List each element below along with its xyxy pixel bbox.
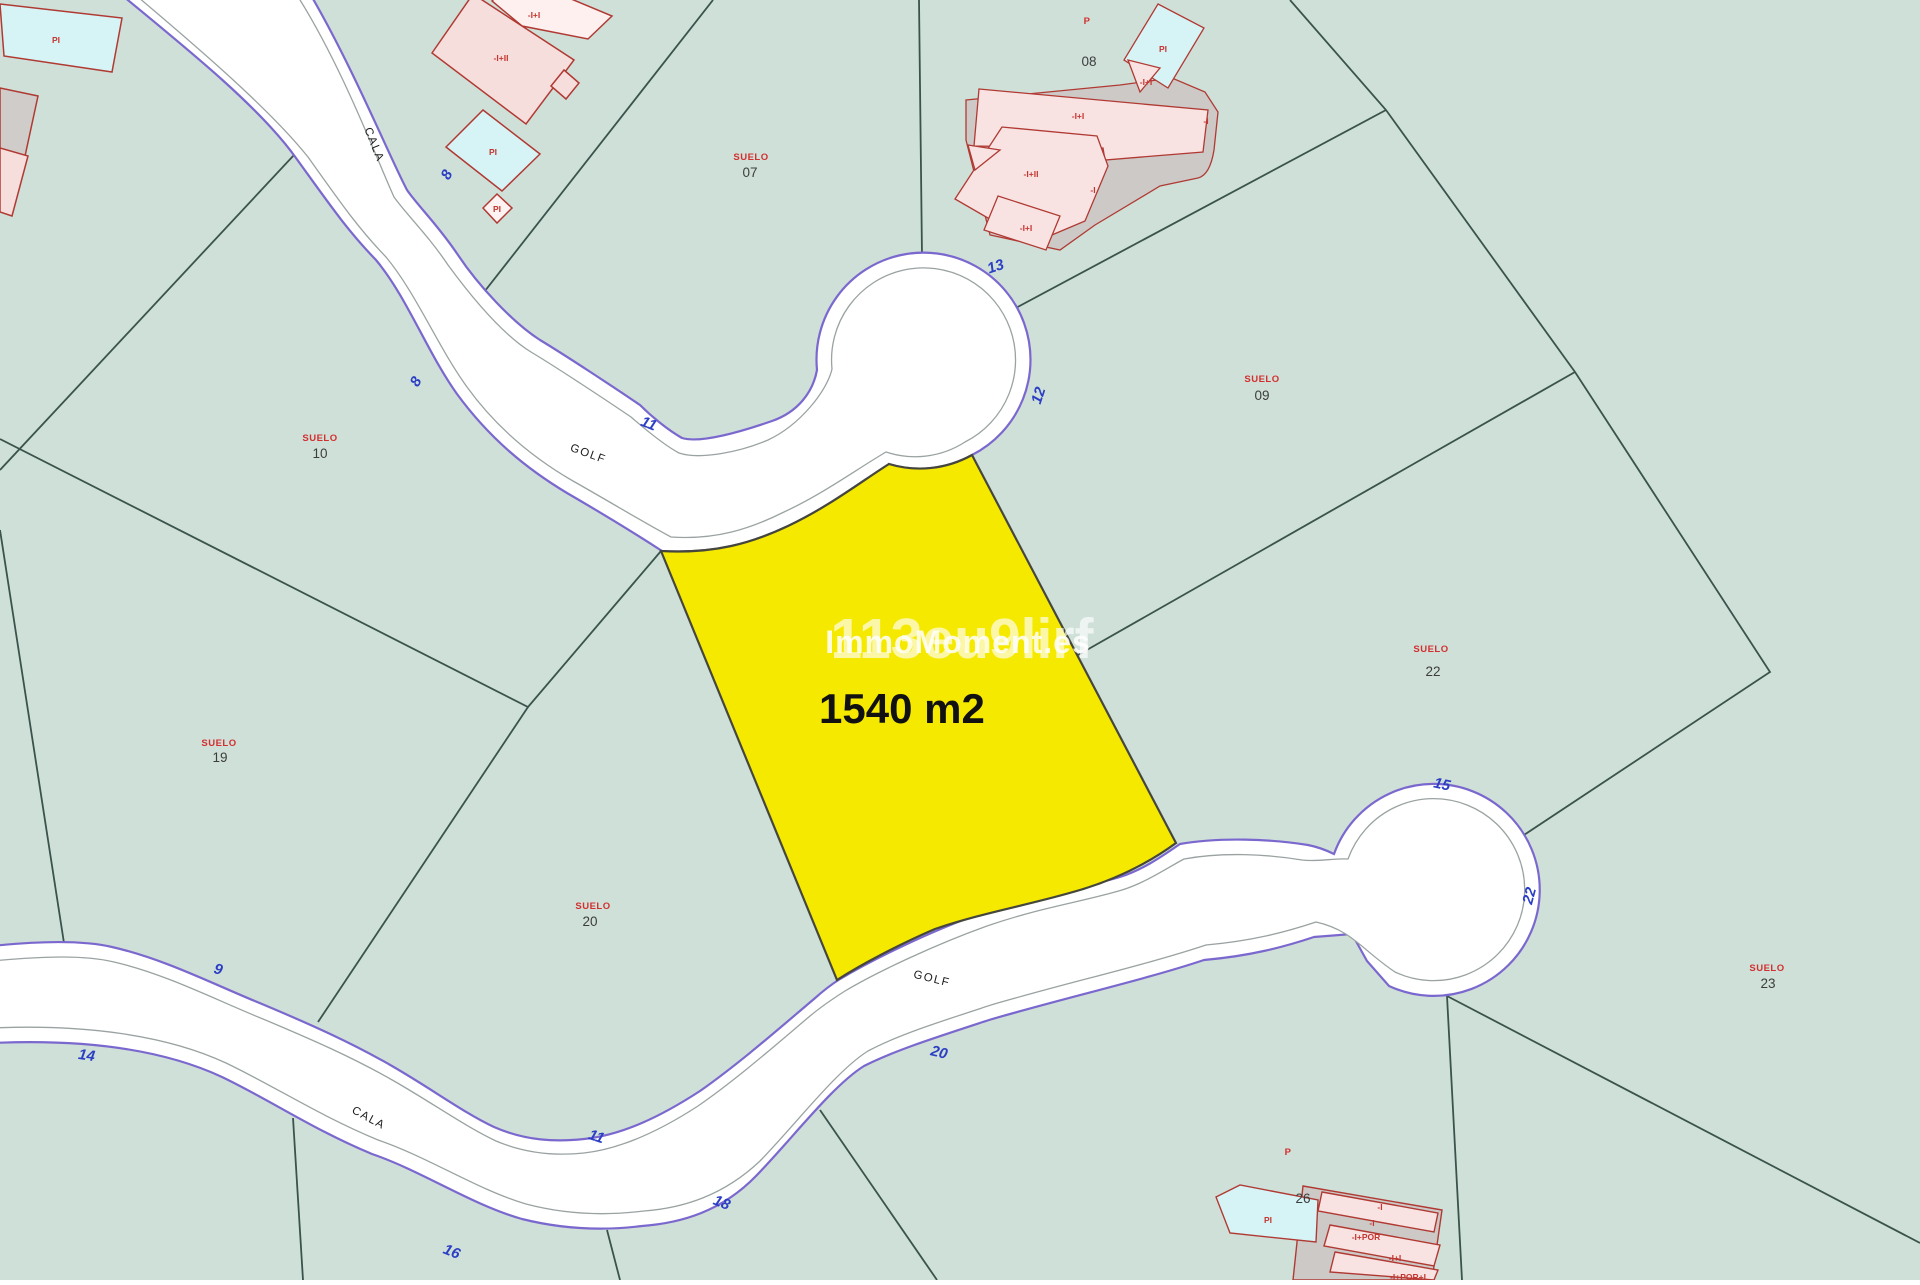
svg-text:09: 09 [1254,388,1269,403]
svg-text:SUELO: SUELO [1413,644,1448,655]
svg-text:PI: PI [52,35,60,45]
svg-text:-I: -I [1090,185,1095,195]
svg-text:20: 20 [582,914,597,929]
svg-text:-I+I: -I+I [1020,223,1033,233]
svg-text:08: 08 [1081,54,1096,69]
svg-text:SUELO: SUELO [201,738,236,749]
svg-text:SUELO: SUELO [575,901,610,912]
svg-text:PI: PI [489,147,497,157]
svg-text:23: 23 [1760,976,1775,991]
svg-text:1540 m2: 1540 m2 [819,685,985,732]
svg-text:-I: -I [1377,1202,1382,1212]
svg-text:-I+I: -I+I [528,10,541,20]
svg-text:-I+I: -I+I [1389,1253,1402,1263]
svg-text:10: 10 [312,446,327,461]
svg-text:-I+POR+I: -I+POR+I [1390,1272,1426,1280]
svg-text:-I: -I [1369,1218,1374,1228]
svg-text:-I: -I [1203,116,1208,126]
svg-text:P: P [1285,1147,1292,1158]
svg-text:-I+I: -I+I [1072,111,1085,121]
svg-text:-I+POR: -I+POR [1352,1232,1381,1242]
svg-text:SUELO: SUELO [1244,374,1279,385]
svg-text:ImmoMoment.es: ImmoMoment.es [825,624,1090,660]
svg-text:PI: PI [1264,1215,1272,1225]
svg-text:14: 14 [77,1046,97,1065]
svg-text:-I+II: -I+II [494,53,509,63]
svg-text:PI: PI [1159,44,1167,54]
svg-text:19: 19 [212,750,227,765]
svg-text:-I+II: -I+II [1024,169,1039,179]
svg-text:SUELO: SUELO [302,433,337,444]
svg-text:26: 26 [1295,1191,1310,1206]
svg-text:-I+I: -I+I [1140,77,1153,87]
svg-text:PI: PI [493,204,501,214]
svg-text:SUELO: SUELO [733,152,768,163]
svg-text:22: 22 [1425,664,1440,679]
svg-text:P: P [1084,16,1091,27]
svg-text:SUELO: SUELO [1749,963,1784,974]
svg-text:07: 07 [742,165,757,180]
